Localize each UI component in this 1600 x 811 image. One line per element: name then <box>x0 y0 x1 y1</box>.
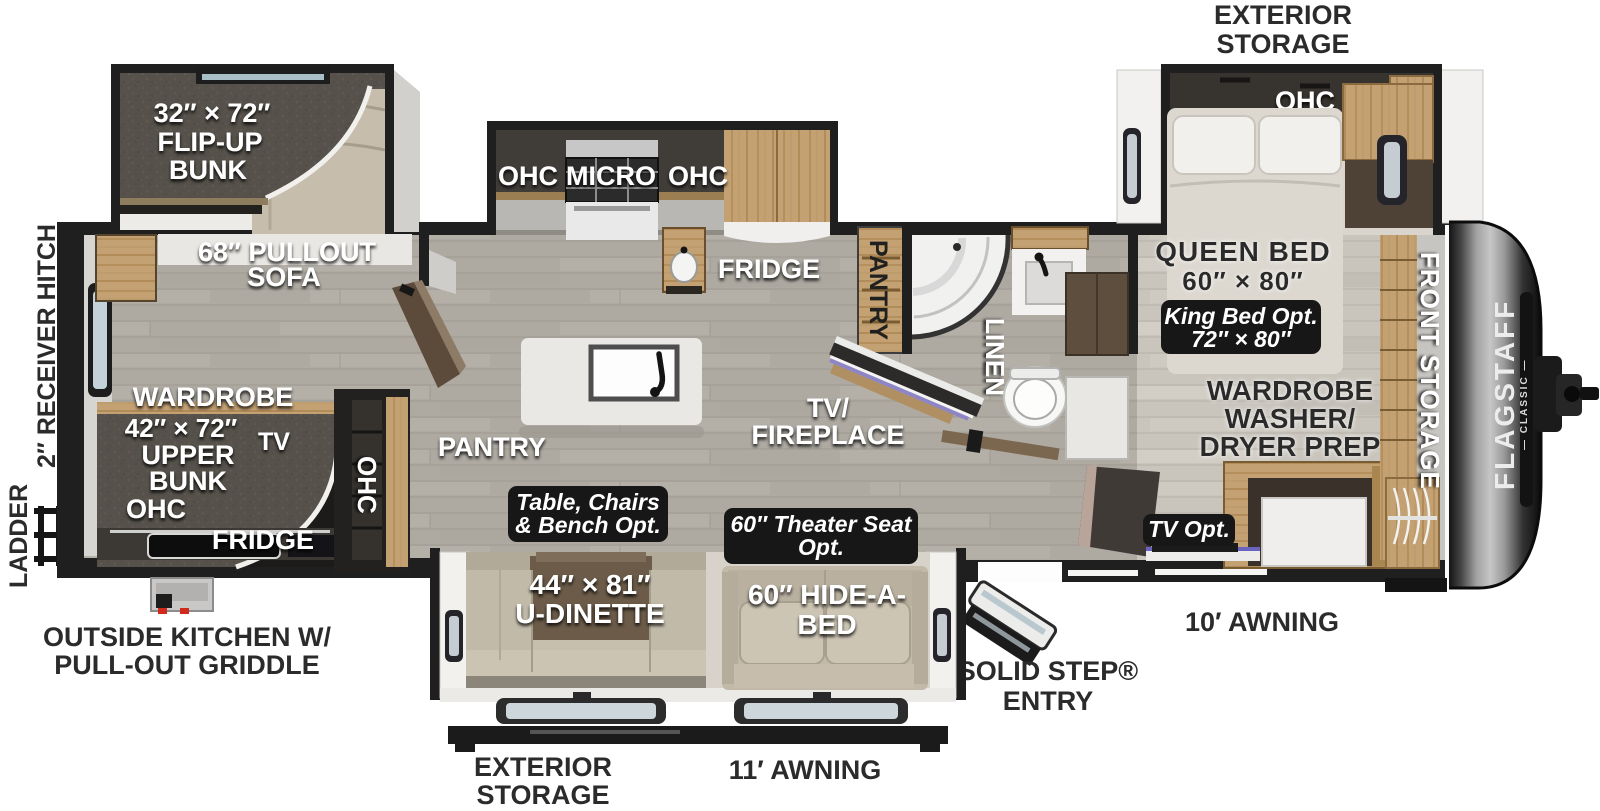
svg-text:BED: BED <box>797 609 856 640</box>
svg-text:BUNK: BUNK <box>169 155 247 185</box>
svg-text:TV/: TV/ <box>807 393 850 423</box>
svg-text:STORAGE: STORAGE <box>1216 29 1349 59</box>
svg-text:FIREPLACE: FIREPLACE <box>751 420 904 450</box>
svg-text:LADDER: LADDER <box>5 484 33 588</box>
svg-text:OHC: OHC <box>498 161 558 191</box>
svg-text:OUTSIDE KITCHEN W/: OUTSIDE KITCHEN W/ <box>43 622 331 652</box>
svg-text:MICRO: MICRO <box>566 161 656 191</box>
svg-text:10′ AWNING: 10′ AWNING <box>1185 607 1339 637</box>
svg-text:FLIP-UP: FLIP-UP <box>158 127 263 157</box>
svg-text:LINEN: LINEN <box>980 318 1010 396</box>
svg-text:EXTERIOR: EXTERIOR <box>1214 0 1352 30</box>
svg-text:WARDROBE: WARDROBE <box>1207 375 1373 406</box>
svg-text:QUEEN BED: QUEEN BED <box>1155 236 1330 267</box>
svg-text:60″ HIDE-A-: 60″ HIDE-A- <box>748 579 906 610</box>
svg-text:SOLID STEP®: SOLID STEP® <box>958 656 1139 686</box>
svg-text:OHC: OHC <box>352 456 382 514</box>
svg-text:FLAGSTAFF: FLAGSTAFF <box>1489 299 1520 490</box>
svg-text:EXTERIOR: EXTERIOR <box>474 752 612 782</box>
svg-text:PULL-OUT GRIDDLE: PULL-OUT GRIDDLE <box>54 650 319 680</box>
svg-text:60″ × 80″: 60″ × 80″ <box>1182 266 1303 296</box>
svg-text:11′ AWNING: 11′ AWNING <box>729 755 882 785</box>
svg-text:TV: TV <box>258 428 290 456</box>
svg-text:TV Opt.: TV Opt. <box>1148 516 1230 542</box>
svg-text:WARDROBE: WARDROBE <box>133 382 294 412</box>
svg-text:DRYER PREP: DRYER PREP <box>1199 431 1380 462</box>
svg-text:FRIDGE: FRIDGE <box>718 254 820 284</box>
svg-text:32″ × 72″: 32″ × 72″ <box>154 98 271 128</box>
svg-text:BUNK: BUNK <box>149 466 227 496</box>
svg-text:72″ × 80″: 72″ × 80″ <box>1191 326 1291 352</box>
svg-text:— CLASSIC —: — CLASSIC — <box>1519 359 1530 450</box>
svg-text:U-DINETTE: U-DINETTE <box>515 598 664 629</box>
svg-text:FRONT STORAGE: FRONT STORAGE <box>1415 252 1445 490</box>
svg-text:FRIDGE: FRIDGE <box>212 525 314 555</box>
svg-text:Opt.: Opt. <box>798 534 844 560</box>
svg-text:2″ RECEIVER HITCH: 2″ RECEIVER HITCH <box>33 224 61 468</box>
svg-text:SOFA: SOFA <box>247 262 321 292</box>
svg-text:42″ × 72″: 42″ × 72″ <box>125 413 237 443</box>
svg-text:ENTRY: ENTRY <box>1003 686 1094 716</box>
svg-text:PANTRY: PANTRY <box>864 240 892 340</box>
svg-text:44″ × 81″: 44″ × 81″ <box>529 569 650 600</box>
svg-text:STORAGE: STORAGE <box>476 780 609 810</box>
svg-text:OHC: OHC <box>126 494 186 524</box>
svg-text:WASHER/: WASHER/ <box>1225 403 1356 434</box>
svg-text:OHC: OHC <box>668 161 728 191</box>
svg-text:& Bench Opt.: & Bench Opt. <box>515 512 661 538</box>
